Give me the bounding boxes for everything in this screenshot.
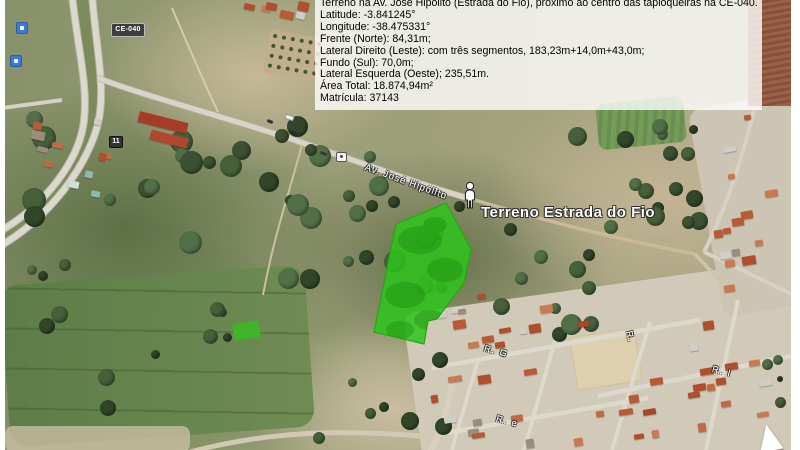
info-line: Frente (Norte): 84,31m; (320, 34, 757, 46)
page-margin-left (0, 0, 5, 450)
parcel-label: Terreno Estrada do Fio (481, 204, 655, 221)
info-line: Matrícula: 37143 (320, 93, 757, 105)
street-label-r: R. (624, 330, 636, 344)
highway-shield-ce040: CE-040 (111, 23, 145, 37)
property-info-box: Terreno na Av. José Hipólito (Estrada do… (315, 0, 762, 110)
screenshot-page: 11 CE-040 Av. José Hipólito Terreno Estr… (0, 0, 800, 450)
info-line: Longitude: -38.475331° (320, 22, 757, 34)
info-line: Lateral Direito (Leste): com três segmen… (320, 46, 757, 58)
pegman-icon[interactable] (465, 182, 474, 208)
page-margin-right (791, 0, 800, 450)
